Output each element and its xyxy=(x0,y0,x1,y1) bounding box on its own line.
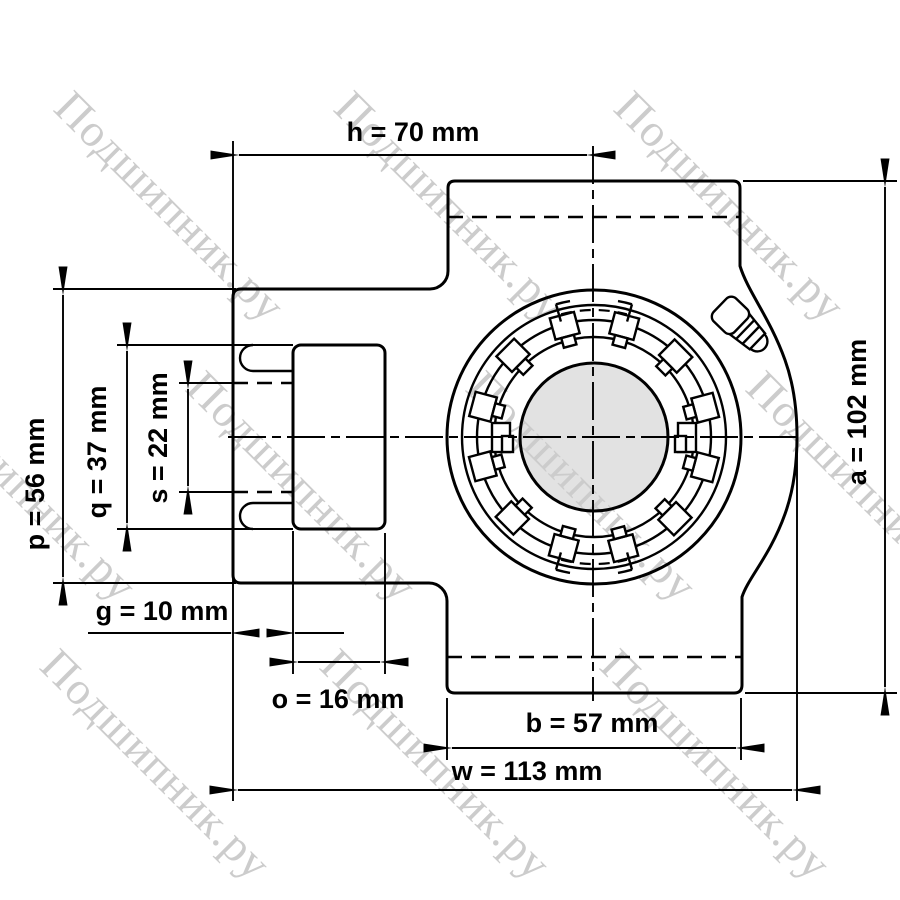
dimension-a-label: a = 102 mm xyxy=(842,339,872,485)
dimension-h-label: h = 70 mm xyxy=(347,117,480,147)
dimension-o-label: o = 16 mm xyxy=(272,684,405,714)
dimension-w-label: w = 113 mm xyxy=(451,756,603,786)
dimension-b-label: b = 57 mm xyxy=(526,708,659,738)
dimension-g-label: g = 10 mm xyxy=(96,596,229,626)
dimension-s-label: s = 22 mm xyxy=(143,372,173,503)
dimension-q-label: q = 37 mm xyxy=(82,386,112,519)
dimension-p-label: p = 56 mm xyxy=(20,418,50,551)
technical-drawing: Подшипник.ру Подшипник.ру Подшипник.ру П… xyxy=(0,0,900,900)
